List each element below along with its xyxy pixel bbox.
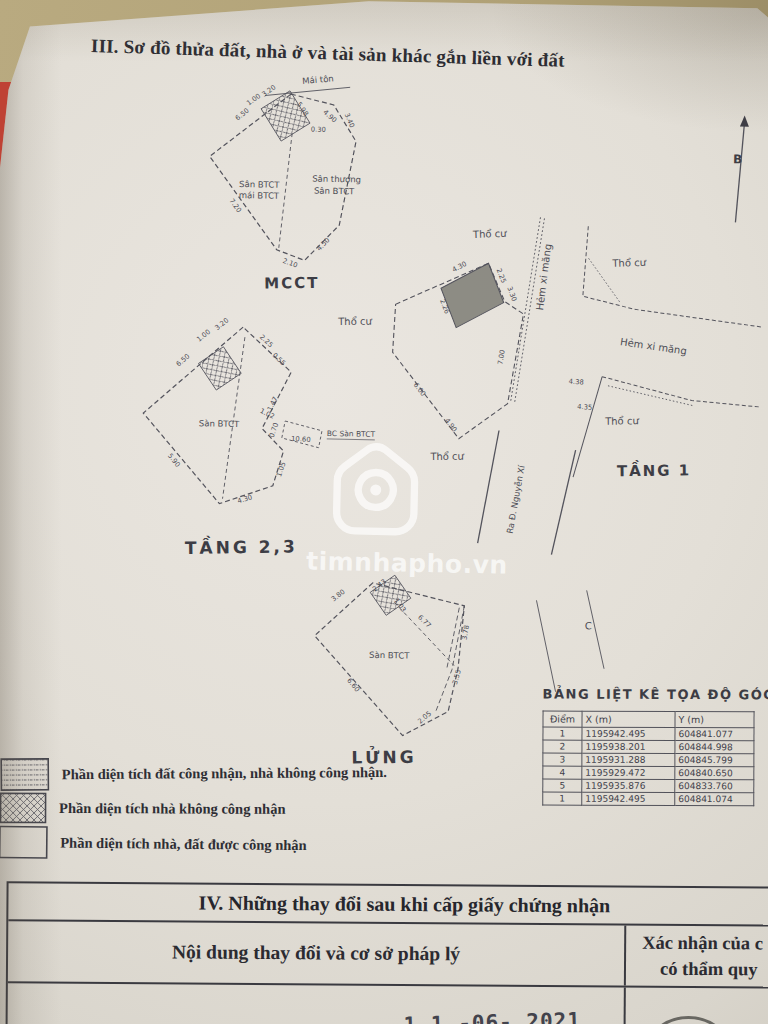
tang23-dim: 5.90 <box>166 452 182 469</box>
lung-dim: 3.55 <box>451 669 463 686</box>
cell: 604840.650 <box>675 766 754 779</box>
tang1-neighbor-dotted <box>608 386 693 406</box>
tang23-dim: 6.50 <box>175 352 192 368</box>
house-pin-icon <box>329 437 423 543</box>
mcct-inner-line <box>279 133 292 248</box>
section4-right-header-line2: có thẩm quy <box>642 956 768 983</box>
mcct-dim: 0.30 <box>311 125 326 133</box>
cell: 1 <box>543 727 582 740</box>
date-stamp: 1 1 -06- 2021 <box>403 1008 581 1024</box>
tang23-floor-label: Sàn BTCT <box>199 418 240 429</box>
coordinate-table-title: BẢNG LIỆT KÊ TỌA ĐỘ GÓC <box>543 687 768 703</box>
cell: 1195929.472 <box>582 766 675 779</box>
tang23-dim: 0.70 <box>268 422 281 439</box>
document-photo: III. Sơ đồ thửa đất, nhà ở và tài sản kh… <box>0 0 768 1024</box>
mcct-dim: 1.00 <box>245 92 262 107</box>
dotted-swatch-icon <box>0 757 50 791</box>
coordinate-table: Điểm X (m) Y (m) 1 1195942.495 604841.07… <box>542 711 754 807</box>
tang1-dim: 4.30 <box>451 260 468 274</box>
tang1-alley-label: Hẻm xi măng <box>620 336 688 356</box>
section4-content-right-cell <box>625 988 768 1024</box>
legend-label: Phần diện tích nhà, đất được công nhận <box>60 834 307 854</box>
north-arrow-head <box>740 115 749 126</box>
cell: 5 <box>543 779 582 792</box>
cell: 1195938.201 <box>582 740 675 753</box>
tang1-dim: 4.38 <box>568 378 584 387</box>
section4-title-row: IV. Những thay đổi sau khi cấp giấy chứn… <box>8 883 768 927</box>
north-label: B <box>733 152 742 166</box>
col-header: Y (m) <box>675 711 754 727</box>
col-header: Điểm <box>543 711 582 727</box>
table-row: 3 1195931.288 604845.799 <box>543 753 754 767</box>
tang1-street-line <box>478 430 499 543</box>
col-header: X (m) <box>582 711 675 727</box>
lung-dim: 6.77 <box>416 613 433 629</box>
section4-right-header-cell: Xác nhận của c có thẩm quy <box>626 926 768 987</box>
tang1-dim: 4.90 <box>443 417 459 434</box>
mcct-roof-line <box>265 86 350 98</box>
mcct-dim: 2.10 <box>282 257 299 270</box>
mcct-dim: 6.50 <box>234 107 251 123</box>
tang1-lower-line <box>535 600 558 691</box>
tang1-corner-label: C <box>585 620 592 631</box>
cell: 604845.799 <box>675 753 754 766</box>
tang1-dim: 6.00 <box>412 381 428 398</box>
lung-floor-label: Sàn BTCT <box>369 650 410 661</box>
mcct-dim: 4.50 <box>315 236 331 252</box>
mcct-diagram <box>208 84 358 261</box>
section4-table: IV. Những thay đổi sau khi cấp giấy chứn… <box>5 881 768 1024</box>
round-seal-icon <box>639 1016 738 1024</box>
cell: 3 <box>543 753 582 766</box>
tang23-hatch-area <box>198 347 241 390</box>
mcct-area-label-2: mái BTCT <box>239 190 280 201</box>
watermark: timnhapho.vn <box>306 437 445 579</box>
tang1-street-label: Ra Đ. Nguyễn Xí <box>505 464 527 535</box>
mcct-area-label-1: Sân BTCT <box>239 179 280 190</box>
tang1-land-label: Thổ cư <box>472 227 508 240</box>
cell: 604841.074 <box>675 792 754 805</box>
legend-item: Phần diện tích nhà, đất được công nhận <box>0 825 538 865</box>
section4-right-header-line1: Xác nhận của c <box>642 930 768 957</box>
cell: 1195931.288 <box>582 753 675 766</box>
tang1-caption: TẦNG 1 <box>617 458 692 480</box>
mcct-terrace-label-2: Sân BTCT <box>314 186 355 197</box>
tang1-land-label: Thổ cư <box>604 414 639 426</box>
lung-dim: 2.05 <box>416 710 433 726</box>
tang1-dim: 3.30 <box>505 285 518 302</box>
section4-left-header: Nội dung thay đổi và cơ sở pháp lý <box>172 941 460 965</box>
tang23-dim: 2.25 <box>258 333 275 349</box>
tang1-alley-label: Hẻm xi măng <box>534 243 553 311</box>
legend-item: Phần diện tích nhà không công nhận <box>0 792 539 826</box>
table-row: 1 1195942.495 604841.077 <box>543 727 754 741</box>
table-row: 5 1195935.876 604833.760 <box>543 779 754 793</box>
tang23-dim: 1.00 <box>195 328 212 344</box>
cell: 1 <box>543 792 582 805</box>
tang23-dim: 3.20 <box>213 316 230 332</box>
lung-dim: 3.78 <box>461 624 471 640</box>
tang1-dim: 7.00 <box>496 349 507 365</box>
mcct-terrace-label-1: Sân thượng <box>312 174 361 185</box>
page-content: III. Sơ đồ thửa đất, nhà ở và tài sản kh… <box>0 0 768 1024</box>
tang23-dim: 4.30 <box>236 493 253 505</box>
lung-dim: 6.60 <box>345 677 361 694</box>
mcct-roof-label: Mái tôn <box>302 73 334 86</box>
section4-content-row: 1 1 -06- 2021 <box>7 983 768 1024</box>
tang23-caption: TẦNG 2,3 <box>185 533 298 558</box>
map-legend: Phần diện tích đất công nhận, nhà không … <box>0 750 540 870</box>
lung-dim: 3.80 <box>330 588 347 604</box>
section4-title: IV. Những thay đổi sau khi cấp giấy chứn… <box>199 891 611 917</box>
mcct-caption: MCCT <box>264 274 319 293</box>
tang1-dim: 4.35 <box>577 403 593 412</box>
tang23-dim: 1.05 <box>275 461 288 478</box>
mcct-dim: 3.20 <box>260 83 277 98</box>
table-header-row: Điểm X (m) Y (m) <box>543 711 754 728</box>
tang1-land-label: Thổ cư <box>611 256 647 269</box>
legend-item: Phần diện tích đất công nhận, nhà không … <box>0 754 540 792</box>
crosshatch-swatch-icon <box>0 792 47 824</box>
section4-content-left-cell: 1 1 -06- 2021 <box>7 983 625 1024</box>
north-arrow-icon <box>735 122 744 222</box>
plain-swatch-icon <box>0 825 48 860</box>
legend-label: Phần diện tích đất công nhận, nhà không … <box>62 763 387 782</box>
cell: 604844.998 <box>675 740 754 753</box>
lung-tail-line <box>447 607 459 667</box>
section4-left-header-cell: Nội dung thay đổi và cơ sở pháp lý <box>8 921 626 985</box>
lung-tail-line <box>435 605 464 714</box>
tang1-boundary-line <box>573 376 602 478</box>
table-row: 1 1195942.495 604841.074 <box>543 792 754 806</box>
tang1-house-footprint <box>440 262 504 328</box>
tang1-street-line <box>551 450 575 555</box>
cell: 4 <box>543 766 582 779</box>
mcct-dim: 4.90 <box>322 108 339 124</box>
tang23-dim: 0.55 <box>271 351 288 367</box>
cell: 604841.077 <box>675 727 754 740</box>
cell: 1195942.495 <box>582 792 675 805</box>
cell: 1195935.876 <box>582 779 675 792</box>
coordinate-table-block: BẢNG LIỆT KÊ TỌA ĐỘ GÓC Điểm X (m) Y (m)… <box>542 687 768 807</box>
table-row: 2 1195938.201 604844.998 <box>543 740 754 754</box>
cell: 604833.760 <box>675 779 754 792</box>
cell: 2 <box>543 740 582 753</box>
tang1-diagram <box>386 108 766 696</box>
document-page: III. Sơ đồ thửa đất, nhà ở và tài sản kh… <box>0 0 768 1024</box>
cell: 1195942.495 <box>582 727 675 740</box>
mcct-dim: 3.40 <box>343 112 356 129</box>
tang1-land-label: Thổ cư <box>337 315 372 327</box>
legend-label: Phần diện tích nhà không công nhận <box>59 800 286 818</box>
watermark-text: timnhapho.vn <box>306 546 443 578</box>
table-row: 4 1195929.472 604840.650 <box>543 766 754 780</box>
tang1-neighbor-boundary <box>582 226 763 327</box>
section4-header-row: Nội dung thay đổi và cơ sở pháp lý Xác n… <box>8 921 768 989</box>
